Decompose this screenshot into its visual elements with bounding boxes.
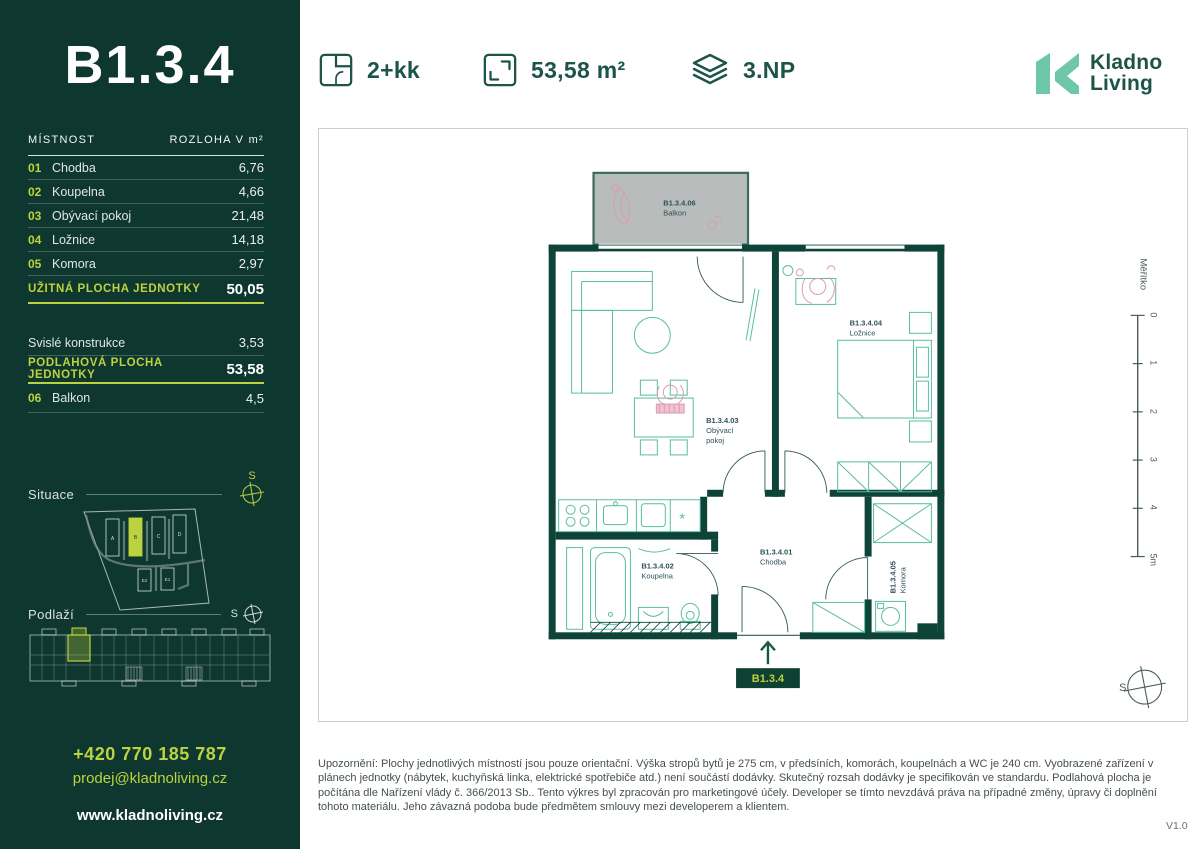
- building-label: D: [178, 532, 182, 538]
- coffee-table: [634, 317, 670, 353]
- kladno-living-logo-mark: [1036, 52, 1080, 95]
- layout-icon: [318, 52, 354, 88]
- floor-units: [31, 636, 269, 680]
- brand-logo: Kladno Living: [1036, 52, 1162, 95]
- sink: [604, 502, 628, 525]
- stair-cores: [126, 667, 202, 680]
- towel-rail: [638, 549, 670, 552]
- scale-tick: 2: [1149, 409, 1159, 414]
- scale-tick: 0: [1149, 312, 1159, 317]
- stove: [566, 505, 589, 526]
- highlighted-unit: [68, 628, 90, 661]
- north-compass: S: [1119, 666, 1166, 708]
- building-label: C: [157, 534, 161, 540]
- building-label: A: [111, 536, 115, 542]
- walls: [549, 245, 945, 640]
- table-row: 04 Ložnice 14,18: [28, 228, 264, 252]
- svg-text:B1.3.4.03: B1.3.4.03: [706, 416, 738, 425]
- layout-value: 2+kk: [367, 57, 420, 84]
- svg-text:pokoj: pokoj: [706, 436, 724, 445]
- entrance-door-arc: [742, 586, 788, 632]
- sofa: [572, 272, 653, 394]
- room-label-living: B1.3.4.03 Obývací pokoj: [706, 416, 738, 445]
- bath-shaft: [567, 548, 583, 630]
- svg-text:Obývací: Obývací: [706, 426, 734, 435]
- spec-layout: 2+kk: [318, 51, 420, 89]
- svg-text:B1.3.4.01: B1.3.4.01: [760, 548, 792, 557]
- north-letter: S: [1119, 682, 1126, 694]
- nightstand: [909, 312, 931, 333]
- floor-plan-drawing: B1.3.4.06 Balkon B1.3.4.04 Ložnice B1.3.…: [319, 129, 1187, 721]
- floor-value: 3.NP: [743, 57, 795, 84]
- entrance-arrow-icon: [761, 642, 775, 664]
- brand-name: Kladno Living: [1090, 52, 1162, 95]
- storage-shelf: [874, 504, 932, 543]
- room-label-bath: B1.3.4.02 Koupelna: [641, 562, 673, 581]
- floor-icon: [690, 52, 730, 88]
- area-table: MÍSTNOST ROZLOHA V m² 01 Chodba 6,76 02 …: [28, 134, 264, 304]
- svg-text:B1.3.4.06: B1.3.4.06: [663, 199, 695, 208]
- svg-text:Chodba: Chodba: [760, 558, 787, 567]
- divider: [86, 614, 220, 615]
- tv-panel: [746, 288, 759, 341]
- svg-text:B1.3.4.04: B1.3.4.04: [850, 318, 883, 327]
- table-row: 01 Chodba 6,76: [28, 156, 264, 180]
- floorplan-sheet: B1.3.4 MÍSTNOST ROZLOHA V m² 01 Chodba 6…: [0, 0, 1200, 849]
- bath-door-arc: [676, 554, 718, 596]
- col-area: ROZLOHA V m²: [170, 134, 264, 146]
- floor-total-row: PODLAHOVÁ PLOCHA JEDNOTKY 53,58: [28, 356, 264, 384]
- wardrobe: [838, 462, 932, 492]
- bath-floor-hatch: [591, 622, 712, 632]
- entrance-marker: B1.3.4: [736, 642, 800, 688]
- room-label-bedroom: B1.3.4.04 Ložnice: [850, 318, 883, 337]
- washing-machine: [876, 601, 906, 631]
- situace-heading: Situace S: [28, 487, 264, 502]
- building-label: E1: [165, 577, 171, 582]
- storage-door-arc: [826, 558, 868, 600]
- version-label: V1.0: [1166, 820, 1188, 832]
- website-url: www.kladnoliving.cz: [0, 807, 300, 824]
- site-map: A B C D E2 E1: [28, 503, 268, 613]
- spec-area: 53,58 m²: [482, 51, 625, 89]
- svg-text:Ložnice: Ložnice: [850, 328, 876, 337]
- bathtub: [591, 548, 631, 630]
- table-row: 05 Komora 2,97: [28, 252, 264, 276]
- floor-map: [28, 623, 272, 695]
- contact-block: +420 770 185 787 prodej@kladnoliving.cz …: [0, 744, 300, 824]
- balcony-row: 06 Balkon 4,5: [28, 384, 264, 413]
- area-icon: [482, 52, 518, 88]
- table-row: 02 Koupelna 4,66: [28, 180, 264, 204]
- room-label-storage: B1.3.4.05 Komora: [889, 561, 908, 593]
- building-label: E2: [142, 578, 148, 583]
- scale-tick: 4: [1149, 505, 1159, 510]
- desk: [783, 266, 836, 305]
- compass-icon: [242, 603, 264, 625]
- spec-floor: 3.NP: [690, 51, 795, 89]
- table-row: 03 Obývací pokoj 21,48: [28, 204, 264, 228]
- hall-cabinet: [813, 602, 865, 632]
- svg-text:Koupelna: Koupelna: [641, 571, 673, 580]
- sidebar: B1.3.4 MÍSTNOST ROZLOHA V m² 01 Chodba 6…: [0, 0, 300, 849]
- scale-tick: 1: [1149, 360, 1159, 365]
- disclaimer-text: Upozornění: Plochy jednotlivých místnost…: [318, 757, 1163, 814]
- divider: [86, 494, 222, 495]
- area-value: 53,58 m²: [531, 57, 625, 84]
- col-room: MÍSTNOST: [28, 134, 95, 146]
- washbasin: [638, 607, 668, 629]
- bed: [838, 340, 932, 418]
- entrance-badge: B1.3.4: [752, 673, 785, 685]
- plan-area: B1.3.4.06 Balkon B1.3.4.04 Ložnice B1.3.…: [318, 128, 1188, 722]
- scale-ruler: Měřítko 0 1 2 3 4 5m: [1131, 259, 1159, 566]
- nightstand: [909, 421, 931, 442]
- svg-text:Komora: Komora: [898, 566, 907, 593]
- person-decor-bedroom: [796, 266, 834, 304]
- balcony-door-arc: [697, 257, 743, 303]
- email-address: prodej@kladnoliving.cz: [0, 770, 300, 787]
- phone-number: +420 770 185 787: [0, 744, 300, 765]
- living-door-arc: [723, 451, 765, 493]
- unit-title: B1.3.4: [0, 34, 300, 96]
- scale-label: Měřítko: [1138, 259, 1149, 291]
- podlazi-compass: S: [231, 603, 264, 625]
- totals-table: Svislé konstrukce 3,53 PODLAHOVÁ PLOCHA …: [28, 330, 264, 413]
- svg-text:Balkon: Balkon: [663, 209, 686, 218]
- room-label-hall: B1.3.4.01 Chodba: [760, 548, 792, 567]
- podlazi-heading: Podlaží S: [28, 603, 264, 625]
- area-table-header: MÍSTNOST ROZLOHA V m²: [28, 134, 264, 156]
- svg-text:B1.3.4.02: B1.3.4.02: [641, 562, 673, 571]
- scale-tick: 3: [1149, 457, 1159, 462]
- svg-text:B1.3.4.05: B1.3.4.05: [889, 561, 898, 593]
- fridge-marker: *: [679, 511, 685, 528]
- oven: [641, 504, 665, 527]
- scale-tick: 5m: [1149, 554, 1159, 566]
- bedroom-door-arc: [785, 451, 827, 493]
- usable-area-row: UŽITNÁ PLOCHA JEDNOTKY 50,05: [28, 276, 264, 304]
- vertical-structures-row: Svislé konstrukce 3,53: [28, 330, 264, 356]
